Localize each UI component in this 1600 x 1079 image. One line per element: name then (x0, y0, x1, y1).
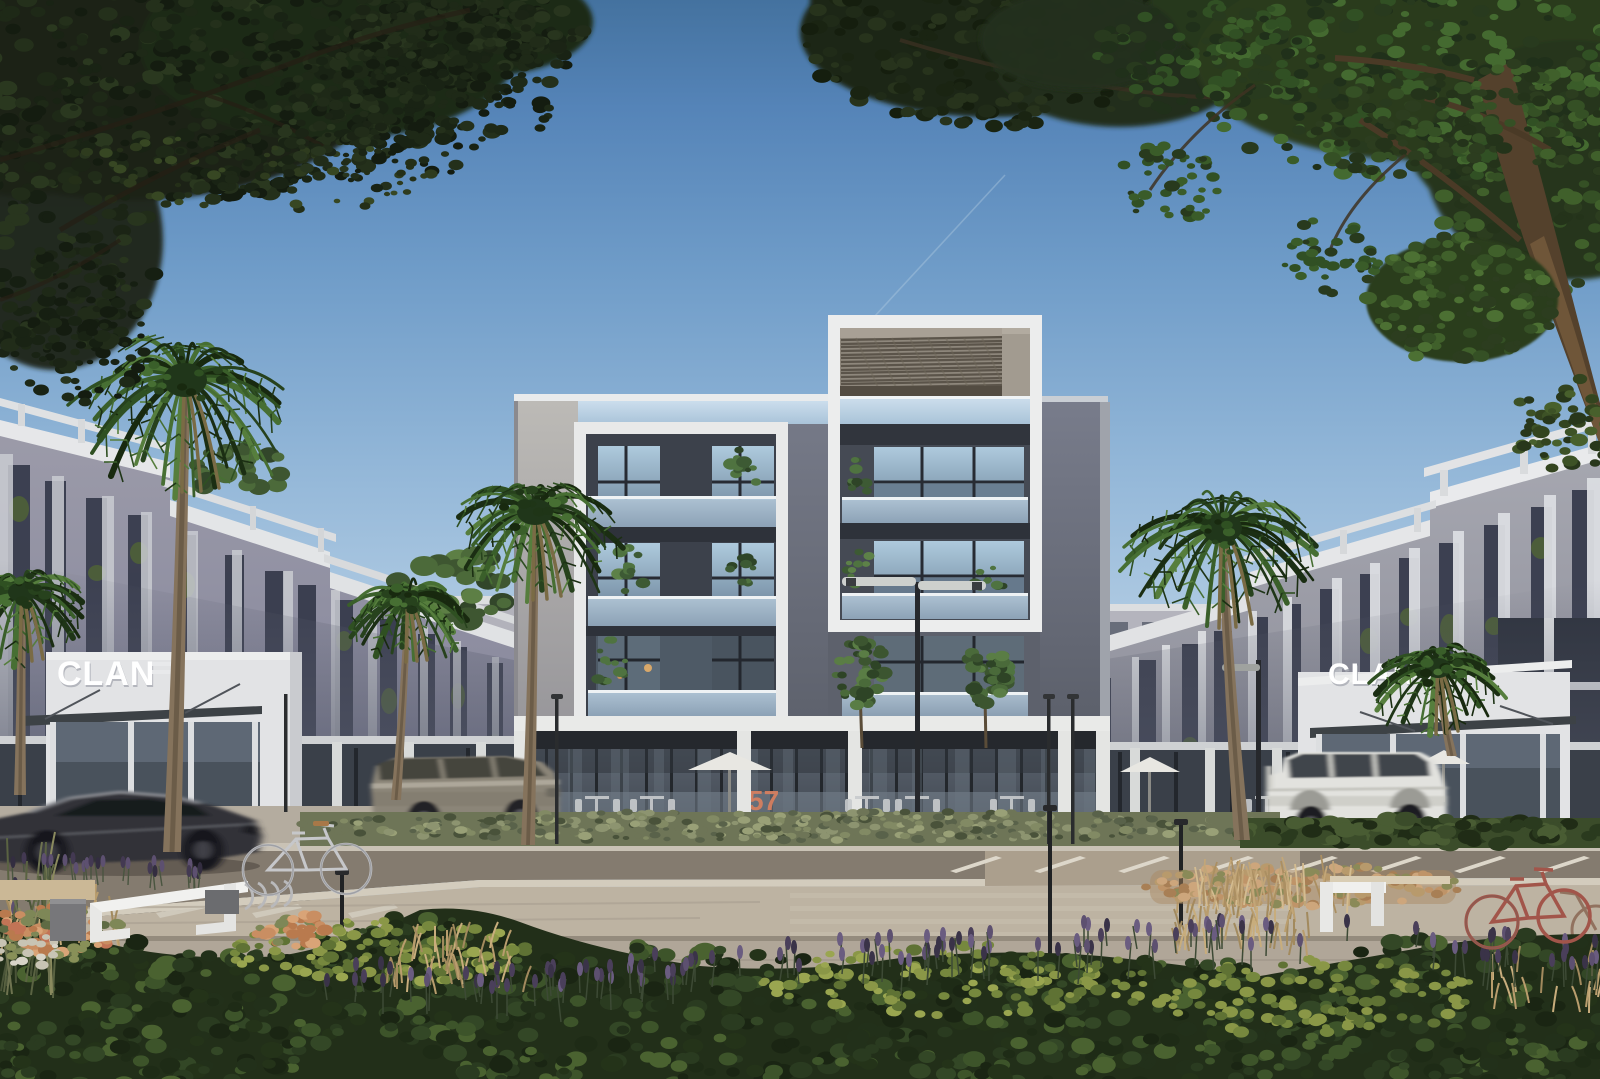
svg-text:CLAN: CLAN (57, 655, 155, 693)
svg-text:57: 57 (748, 785, 779, 816)
